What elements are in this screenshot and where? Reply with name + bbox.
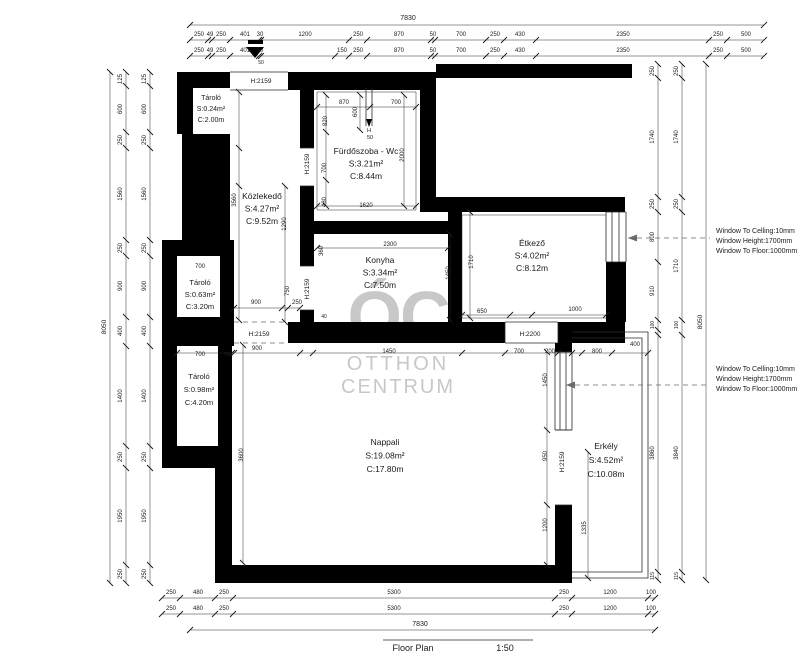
wall-segment	[162, 256, 177, 317]
wall-segment	[555, 343, 572, 352]
dim-label: 430	[515, 32, 526, 38]
dim-label: 700	[456, 48, 467, 54]
dim-label: 401	[240, 32, 251, 38]
room-label-nappali-name: Nappali	[371, 437, 400, 447]
dim-label: 50	[430, 48, 437, 54]
dim-label: 3560	[232, 193, 238, 207]
dim-label: 1950	[118, 509, 124, 523]
dim-label: 50	[367, 135, 373, 141]
dim-label: 7830	[400, 15, 416, 22]
wall-segment	[162, 346, 177, 446]
dim-label: 480	[193, 606, 204, 612]
dim-label: 200	[545, 349, 556, 355]
wall-segment	[288, 72, 436, 90]
dim-label: 1740	[674, 130, 680, 144]
dim-label: 870	[394, 32, 405, 38]
dim-label: 30	[257, 32, 264, 38]
dim-label: 50	[224, 352, 230, 358]
wall-segment	[606, 262, 626, 322]
dim-label: 250	[490, 32, 501, 38]
dim-label: H:2200	[520, 331, 541, 338]
dim-label: 250	[142, 242, 148, 253]
dim-label: 250	[166, 590, 177, 596]
dim-label: 250	[674, 65, 680, 76]
wall-segment	[288, 322, 505, 343]
wall-segment	[162, 240, 234, 256]
dim-label: 820	[323, 115, 329, 126]
dim-label: 400	[630, 342, 641, 348]
dim-label: 250	[142, 451, 148, 462]
dim-label: 49	[207, 32, 214, 38]
dim-label: 1560	[142, 187, 148, 201]
dim-label: 1450	[446, 266, 452, 280]
dim-label: 250	[118, 242, 124, 253]
dim-label: 100	[650, 321, 656, 330]
dim-label: 400	[118, 325, 124, 336]
room-label-etkezo-name: Étkező	[519, 238, 545, 248]
room-label-kozlekedo-area: S:4.27m²	[245, 204, 280, 214]
title-block: Floor Plan 1:50	[383, 640, 533, 653]
dim-label: H:2159	[559, 451, 566, 472]
dim-label: 49	[207, 48, 214, 54]
dim-label: H:2159	[304, 153, 311, 174]
chimney-arrow-icon	[366, 119, 372, 127]
dim-label: 250	[650, 198, 656, 209]
room-label-tarolo-3-name: Tároló	[188, 372, 209, 381]
window-leader-arrows	[566, 235, 710, 389]
dim-label: 1335	[582, 521, 588, 535]
room-label-tarolo-1-height: C:2.00m	[198, 117, 225, 124]
dim-label: 1400	[118, 389, 124, 403]
dim-label: 8050	[697, 314, 704, 329]
dim-label: 3840	[674, 446, 680, 460]
dim-label: H:2159	[251, 78, 272, 85]
dim-label: 50	[430, 32, 437, 38]
wall-segment	[436, 197, 625, 212]
dim-label: 480	[193, 590, 204, 596]
wall-segment	[300, 310, 314, 324]
wall-segment	[182, 134, 230, 256]
dim-label: 250	[713, 32, 724, 38]
dim-label: 360	[319, 245, 325, 256]
window-note-line: Window To Celling:10mm	[716, 228, 795, 235]
room-label-furdoszoba-area: S:3.21m²	[349, 159, 384, 169]
dim-label: 250	[142, 134, 148, 145]
dim-label: 700	[456, 32, 467, 38]
dim-label: 1200	[603, 606, 617, 612]
wall-segment	[420, 90, 436, 212]
dim-label: 700	[195, 264, 206, 270]
dim-label: 1200	[543, 518, 549, 532]
watermark-line2: CENTRUM	[341, 376, 455, 398]
wall-segment	[436, 64, 632, 78]
room-label-tarolo-2-area: S:0.63m²	[185, 290, 216, 299]
room-label-kozlekedo-name: Közlekedő	[242, 191, 282, 201]
dim-label: 1000	[568, 307, 582, 313]
dim-label: 250	[490, 48, 501, 54]
dim-label: 125	[118, 73, 124, 84]
dim-label: 250	[216, 48, 227, 54]
dim-label: 250	[194, 48, 205, 54]
plan-line	[190, 25, 764, 56]
plan-title: Floor Plan	[392, 643, 433, 653]
dim-label: 650	[477, 309, 488, 315]
dim-label: 250	[142, 568, 148, 579]
window-note-line: Window Height:1700mm	[716, 376, 792, 383]
dim-label: 600	[142, 103, 148, 114]
watermark-monogram: ÓC	[348, 277, 449, 355]
dim-label: 1950	[142, 509, 148, 523]
plan-scale: 1:50	[496, 643, 514, 653]
room-label-tarolo-1-name: Tároló	[201, 95, 221, 102]
dim-label: 700	[391, 100, 402, 106]
dim-label: 700	[195, 352, 206, 358]
dim-label: 250	[713, 48, 724, 54]
dim-label: 3600	[239, 448, 245, 462]
dim-label: 50	[257, 48, 264, 54]
dim-label: 125	[142, 73, 148, 84]
dim-label: 800	[592, 349, 603, 355]
room-label-tarolo-3-area: S:0.98m²	[184, 385, 215, 394]
dim-label: 50	[258, 60, 264, 66]
room-label-erkely-name: Erkély	[594, 441, 618, 451]
dim-label: 1200	[603, 590, 617, 596]
wall-segment	[558, 322, 625, 343]
room-label-tarolo-2-height: C:3.20m	[186, 302, 214, 311]
wall-segment	[177, 88, 193, 134]
dim-label: 750	[285, 285, 291, 296]
window-note-line: Window To Floor:1000mm	[716, 248, 797, 255]
dim-label: 500	[741, 48, 752, 54]
room-label-etkezo-height: C:8.12m	[516, 263, 548, 273]
dim-label: 1400	[142, 389, 148, 403]
dim-label: 1200	[298, 32, 312, 38]
room-label-nappali-height: C:17.80m	[367, 464, 404, 474]
dim-label: 250	[674, 198, 680, 209]
room-label-erkely-height: C:10.08m	[588, 469, 625, 479]
room-label-konyha-height: C:7.50m	[364, 280, 396, 290]
dim-label: 700	[322, 162, 328, 173]
dim-label: 910	[650, 285, 656, 296]
dim-label: 900	[142, 280, 148, 291]
wall-segment	[300, 186, 314, 234]
room-label-kozlekedo-height: C:9.52m	[246, 216, 278, 226]
wall-segment	[555, 505, 572, 567]
dim-label: 870	[394, 48, 405, 54]
dim-label: 950	[543, 450, 549, 461]
dim-label: H	[367, 128, 371, 134]
floor-plan-page: ÓC OTTHON CENTRUM 7830250492504013012002…	[0, 0, 800, 659]
dim-label: 1290	[282, 217, 288, 231]
wall-segment	[215, 468, 232, 565]
wall-segment	[300, 234, 314, 266]
dim-label: 401	[240, 48, 251, 54]
room-label-erkely-area: S:4.52m²	[589, 455, 624, 465]
dim-label: 900	[118, 280, 124, 291]
room-label-tarolo-2-name: Tároló	[189, 278, 210, 287]
floor-plan-canvas: ÓC OTTHON CENTRUM 7830250492504013012002…	[0, 0, 800, 659]
window-note-line: Window To Celling:10mm	[716, 366, 795, 373]
dim-label: 900	[252, 346, 263, 352]
plan-line	[162, 598, 655, 630]
dim-label: 600	[353, 106, 359, 117]
dim-label: 2000	[400, 148, 406, 162]
dim-label: 2300	[383, 242, 397, 248]
dim-label: 1710	[469, 255, 475, 269]
dim-label: 1560	[118, 187, 124, 201]
wall-segment	[162, 446, 232, 468]
dim-label: 250	[292, 300, 303, 306]
room-label-nappali-area: S:19.08m²	[365, 451, 404, 461]
dim-label: 2350	[616, 32, 630, 38]
wall-segment	[162, 317, 234, 346]
dim-label: 1450	[543, 373, 549, 387]
dim-label: 800	[650, 231, 656, 242]
dim-label: 1620	[359, 203, 373, 209]
dim-label: 5300	[387, 590, 401, 596]
dim-label: 100	[646, 590, 657, 596]
dim-label: 430	[515, 48, 526, 54]
watermark-line1: OTTHON	[347, 353, 449, 375]
room-label-konyha-area: S:3.34m²	[363, 268, 398, 278]
dim-label: 250	[194, 32, 205, 38]
room-label-furdoszoba-name: Fürdőszoba - Wc	[334, 146, 399, 156]
plan-line	[555, 352, 572, 430]
wall-segment	[218, 346, 232, 446]
wall-segment	[300, 90, 314, 148]
dim-label: 3860	[650, 446, 656, 460]
room-label-konyha-name: Konyha	[366, 255, 395, 265]
dim-label: 250	[219, 606, 230, 612]
dim-label: 2350	[616, 48, 630, 54]
dim-label: 40	[321, 314, 327, 320]
wall-segment	[177, 72, 230, 88]
dim-label: 1740	[650, 130, 656, 144]
dim-label: 700	[514, 349, 525, 355]
dim-label: 250	[559, 590, 570, 596]
dim-label: 250	[118, 451, 124, 462]
plan-line	[606, 212, 626, 262]
window-note-line: Window Height:1700mm	[716, 238, 792, 245]
dim-label: H:2159	[304, 278, 311, 299]
dim-label: 600	[118, 103, 124, 114]
dim-label: 250	[559, 606, 570, 612]
dim-label: 500	[741, 32, 752, 38]
dim-label: 100	[646, 606, 657, 612]
dim-label: 5300	[387, 606, 401, 612]
room-label-tarolo-3-height: C:4.20m	[185, 398, 213, 407]
window-note-line: Window To Floor:1000mm	[716, 386, 797, 393]
dim-label: 870	[339, 100, 350, 106]
dim-label: 115	[674, 572, 680, 580]
dim-label: 480	[322, 196, 328, 207]
wall-segment	[313, 221, 455, 234]
dim-label: 7830	[412, 621, 428, 628]
wall-segment	[215, 565, 572, 583]
dim-label: 250	[166, 606, 177, 612]
room-label-furdoszoba-height: C:8.44m	[350, 171, 382, 181]
dim-label: 250	[650, 65, 656, 76]
dim-label: 1710	[674, 259, 680, 273]
dim-label: 250	[219, 590, 230, 596]
wall-segment	[220, 256, 234, 317]
dim-label: 100	[674, 321, 680, 330]
dim-label: 150	[337, 48, 348, 54]
dim-label: 115	[650, 572, 656, 580]
room-label-tarolo-1-area: S:0.24m²	[197, 106, 226, 113]
dim-label: 250	[216, 32, 227, 38]
dim-label: 250	[353, 32, 364, 38]
dim-label: 900	[251, 300, 262, 306]
dim-label: 8050	[101, 319, 108, 334]
window-notes: Window To Celling:10mmWindow Height:1700…	[716, 228, 797, 393]
dim-label: 250	[118, 134, 124, 145]
dim-label: 400	[142, 325, 148, 336]
dim-label: 250	[353, 48, 364, 54]
dim-label: 250	[118, 568, 124, 579]
dim-label: 1450	[382, 349, 396, 355]
room-label-etkezo-area: S:4.02m²	[515, 251, 550, 261]
dim-label: H:2159	[249, 331, 270, 338]
